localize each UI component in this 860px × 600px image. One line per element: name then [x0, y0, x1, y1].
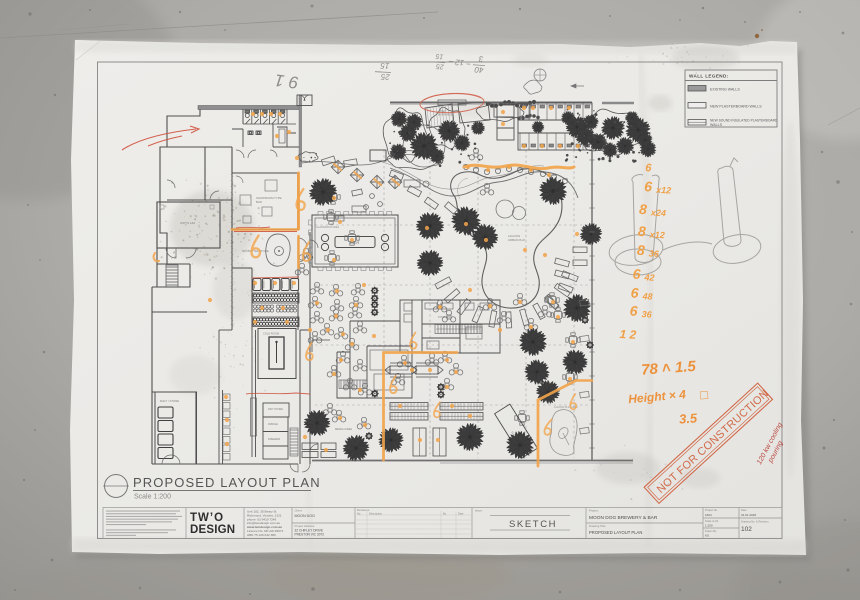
- svg-text:500 BOTTLE STORE: 500 BOTTLE STORE: [242, 249, 269, 253]
- svg-text:42: 42: [643, 272, 655, 283]
- svg-text:URBAN PLAY: URBAN PLAY: [508, 238, 526, 242]
- svg-text:□: □: [699, 387, 708, 403]
- svg-text:MOON DOG BREWERY & BAR: MOON DOG BREWERY & BAR: [589, 515, 658, 521]
- svg-text:Revisions:: Revisions:: [357, 508, 370, 512]
- svg-text:8: 8: [637, 242, 646, 258]
- svg-text:DESIGN: DESIGN: [190, 524, 235, 536]
- svg-text:Description: Description: [369, 512, 383, 516]
- svg-text:MALT / STORE: MALT / STORE: [160, 399, 179, 403]
- svg-text:36: 36: [649, 248, 661, 259]
- svg-text:x12: x12: [655, 185, 672, 196]
- svg-text:ABN 75 126 042 389: ABN 75 126 042 389: [247, 533, 276, 537]
- svg-text:36: 36: [641, 309, 653, 320]
- svg-text:1604: 1604: [705, 513, 712, 517]
- svg-text:FRIDGE: FRIDGE: [268, 422, 278, 426]
- svg-text:= 12 –: = 12 –: [448, 57, 472, 68]
- svg-text:WALLS: WALLS: [710, 123, 723, 127]
- svg-text:6: 6: [644, 178, 653, 194]
- svg-text:NEW PLASTERBOARD WALLS: NEW PLASTERBOARD WALLS: [710, 105, 762, 109]
- svg-text:Date: Date: [741, 508, 747, 512]
- svg-text:15: 15: [435, 52, 443, 60]
- svg-text:31.01.2018: 31.01.2018: [741, 513, 756, 517]
- svg-text:SKETCH: SKETCH: [509, 519, 557, 530]
- svg-text:Scale 1:200: Scale 1:200: [134, 494, 171, 501]
- svg-text:8: 8: [639, 201, 648, 217]
- svg-text:Drawn By: Drawn By: [705, 529, 717, 533]
- svg-text:Project:: Project:: [589, 509, 599, 513]
- svg-text:102: 102: [741, 526, 752, 533]
- svg-text:Drawing Title:: Drawing Title:: [589, 524, 606, 528]
- svg-text:Scale at A3: Scale at A3: [705, 519, 719, 523]
- svg-text:MOON DOG: MOON DOG: [295, 514, 316, 518]
- svg-text:COLD ROOM: COLD ROOM: [263, 332, 279, 336]
- svg-text:40: 40: [474, 65, 484, 75]
- svg-text:MERCH AREA: MERCH AREA: [335, 427, 352, 431]
- svg-text:Issue:: Issue:: [475, 509, 483, 513]
- svg-text:Project Address:: Project Address:: [295, 524, 316, 528]
- svg-text:9 1: 9 1: [274, 70, 300, 92]
- svg-text:DRY STORE: DRY STORE: [268, 407, 283, 411]
- svg-text:15: 15: [380, 61, 390, 70]
- svg-text:6: 6: [629, 303, 638, 319]
- svg-text:PROPOSED LAYOUT PLAN: PROPOSED LAYOUT PLAN: [589, 530, 642, 535]
- svg-text:FREEZER: FREEZER: [268, 437, 280, 441]
- svg-text:UNITS 1&2: UNITS 1&2: [180, 221, 196, 225]
- svg-text:6: 6: [632, 266, 641, 282]
- svg-text:KS: KS: [705, 534, 709, 538]
- svg-text:Client:: Client:: [295, 509, 303, 513]
- svg-text:PROPOSED LAYOUT PLAN: PROPOSED LAYOUT PLAN: [133, 475, 321, 490]
- svg-text:Date: Date: [458, 512, 464, 516]
- svg-text:25: 25: [436, 62, 445, 70]
- svg-text:GLASSWASH AREA: GLASSWASH AREA: [316, 226, 339, 229]
- svg-text:WALL LEGEND:: WALL LEGEND:: [689, 74, 729, 79]
- svg-text:PRESTON VIC 3072: PRESTON VIC 3072: [295, 533, 325, 537]
- svg-text:x24: x24: [650, 207, 667, 218]
- svg-text:25: 25: [380, 72, 391, 82]
- svg-text:6: 6: [630, 285, 639, 301]
- svg-text:BAR: BAR: [256, 200, 262, 204]
- svg-text:BOTTLE: BOTTLE: [286, 307, 296, 310]
- svg-text:Project No.: Project No.: [705, 508, 718, 512]
- svg-text:8: 8: [638, 223, 647, 239]
- svg-text:Drawing No. & Revision: Drawing No. & Revision: [741, 520, 769, 524]
- svg-text:1 2: 1 2: [619, 327, 637, 342]
- svg-text:NEW SOUND INSULATED PLASTERBOA: NEW SOUND INSULATED PLASTERBOARD: [710, 119, 778, 123]
- svg-text:No.: No.: [357, 512, 361, 516]
- svg-text:3.5: 3.5: [679, 410, 699, 426]
- svg-text:EXISTING WALLS: EXISTING WALLS: [710, 88, 740, 92]
- svg-text:TW’O: TW’O: [190, 512, 224, 524]
- svg-text:x12: x12: [649, 229, 666, 240]
- svg-text:1:200: 1:200: [705, 524, 713, 528]
- svg-text:48: 48: [641, 291, 653, 302]
